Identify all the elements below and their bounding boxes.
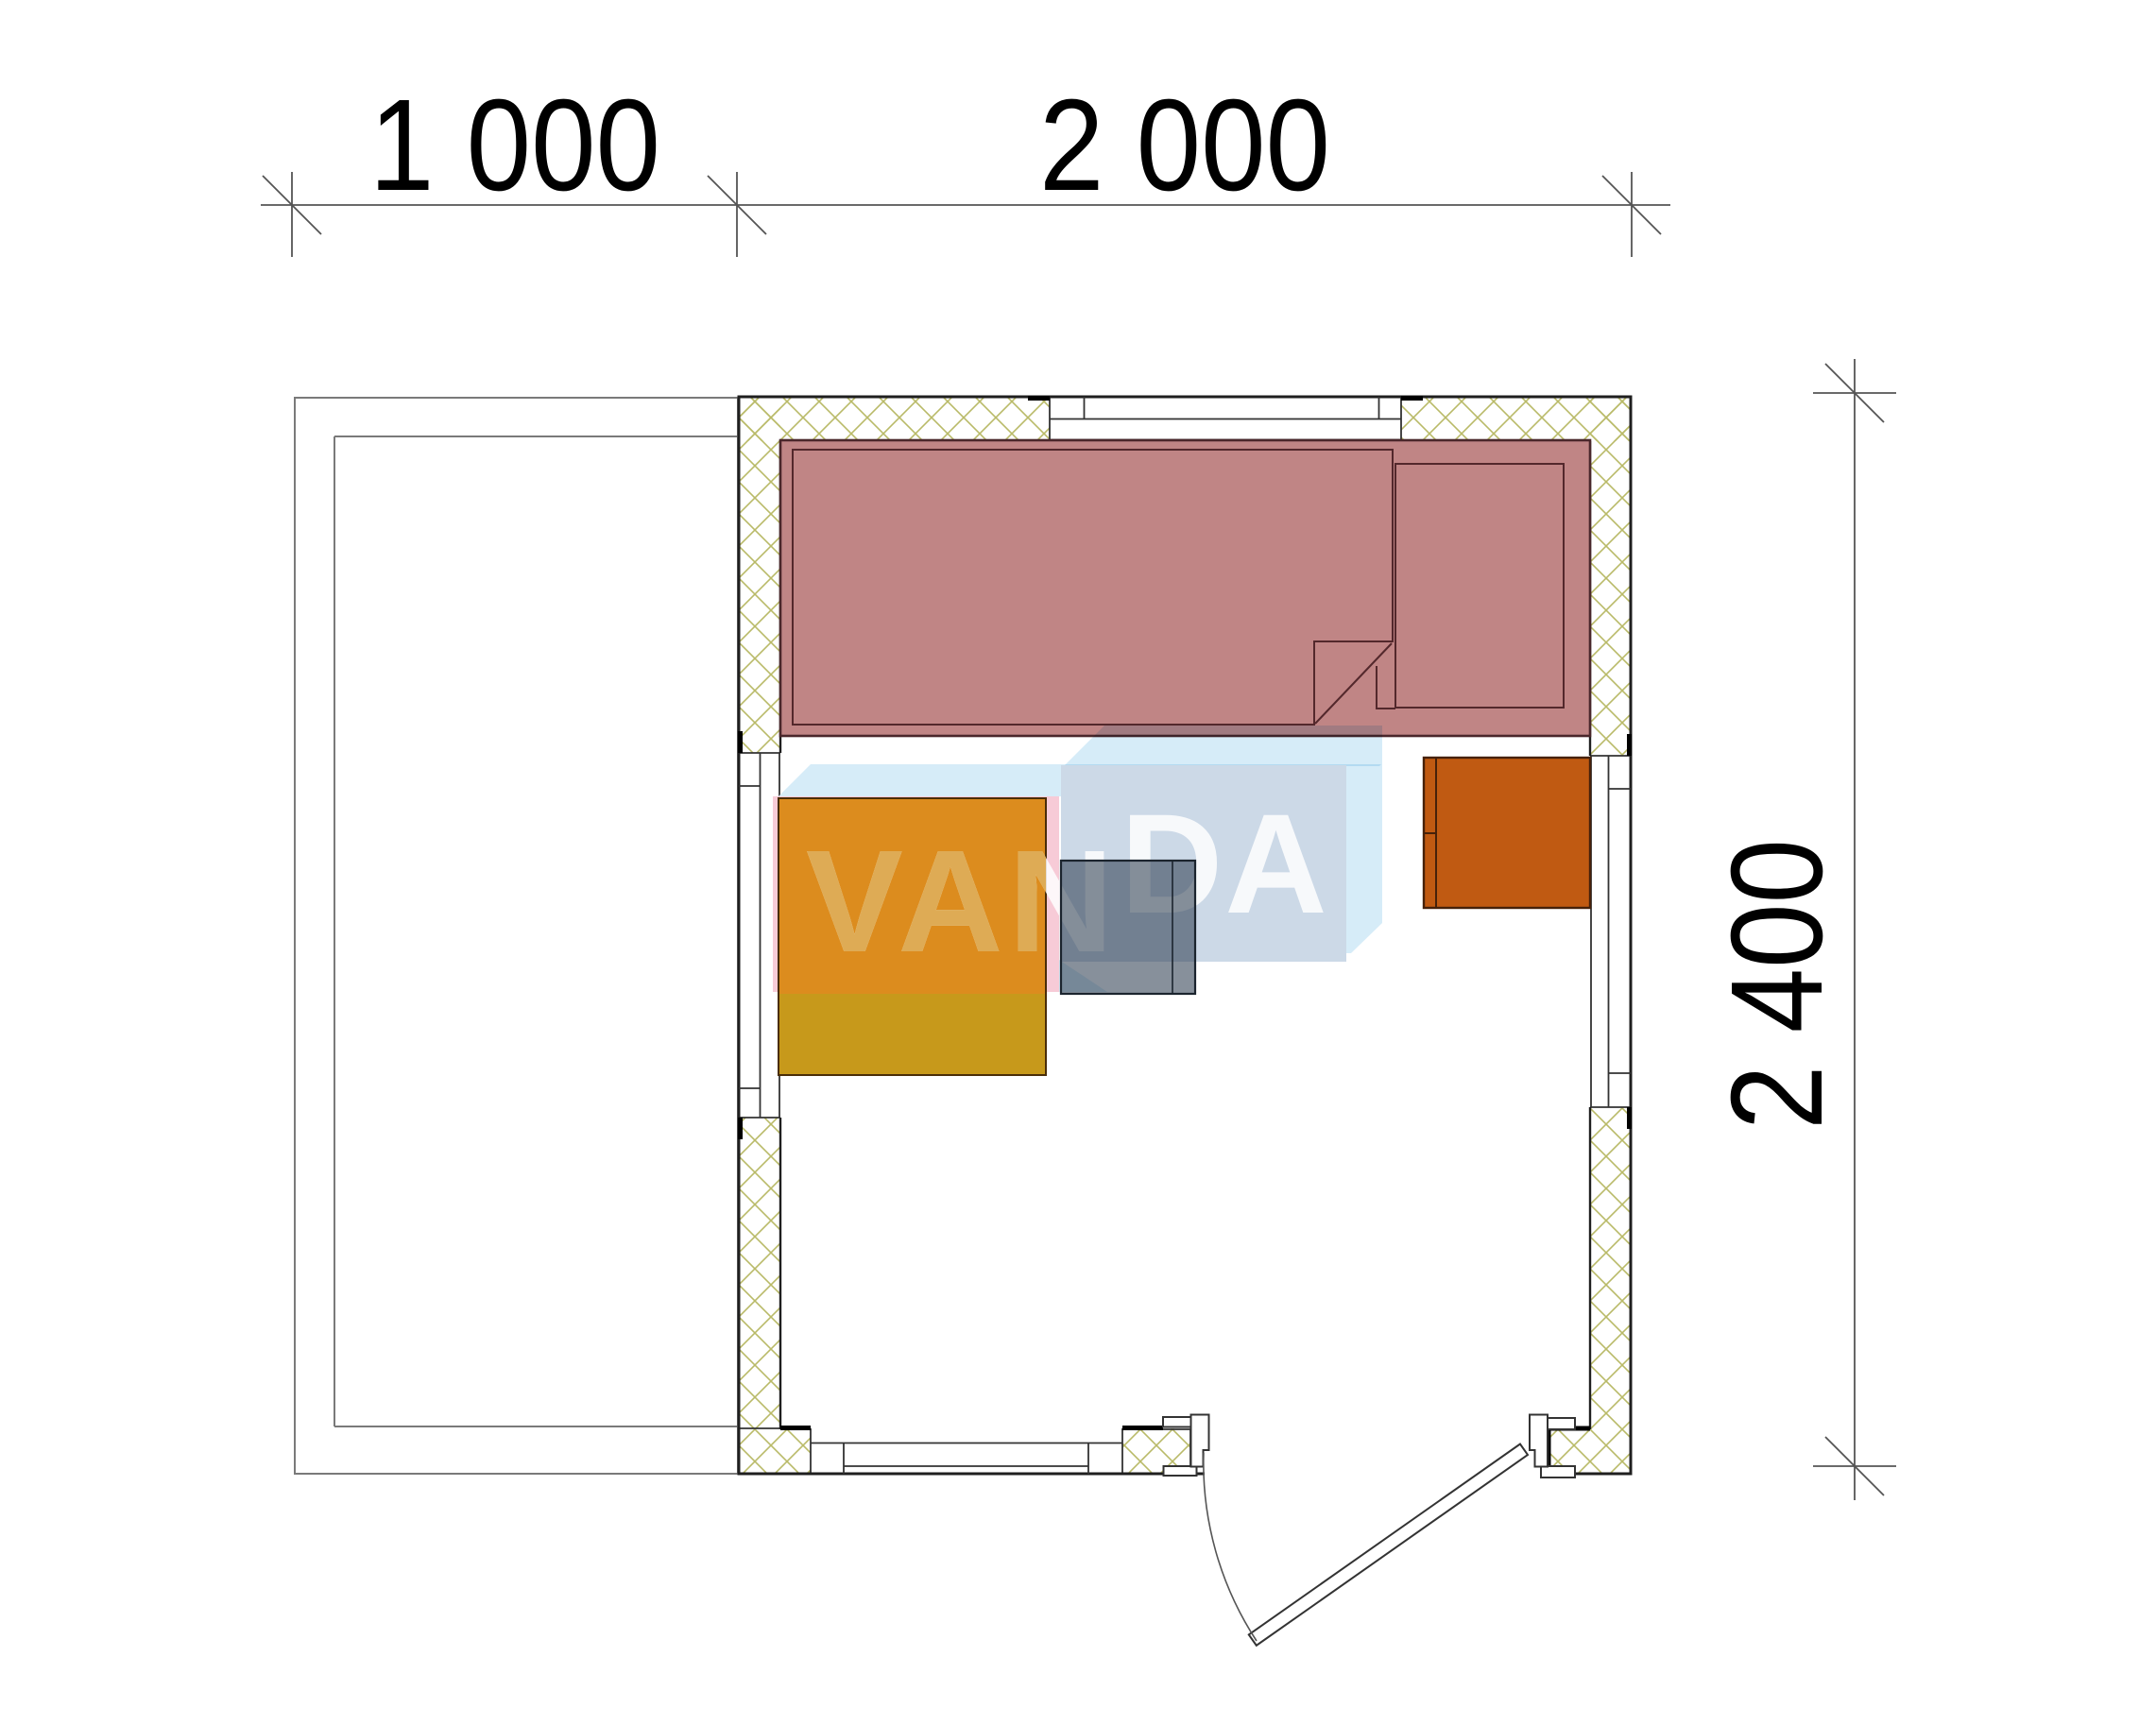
svg-text:2 000: 2 000 [1039, 73, 1330, 218]
svg-text:2 400: 2 400 [1704, 839, 1850, 1130]
svg-text:1 000: 1 000 [369, 73, 660, 218]
